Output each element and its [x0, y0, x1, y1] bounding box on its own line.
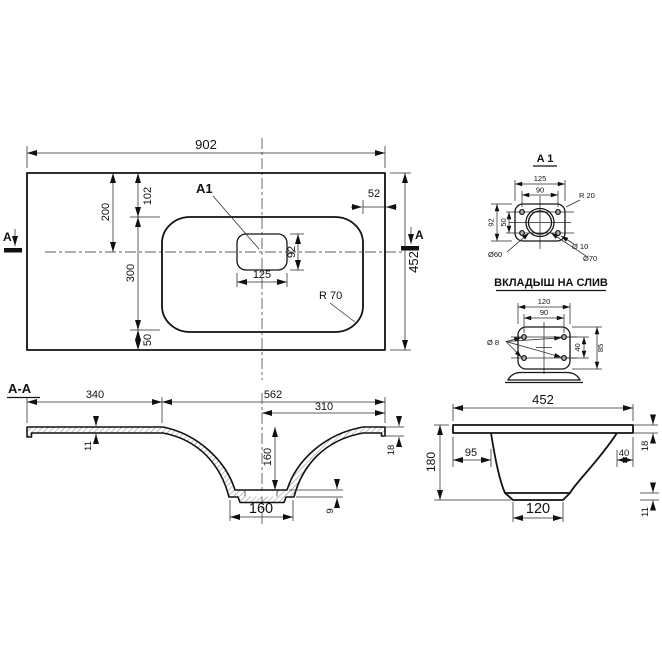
aa-dim-bottom-thickness: 9: [325, 508, 336, 513]
section-aa-title: A-A: [8, 381, 32, 396]
a1-dim-50: 50: [499, 218, 508, 226]
dim-total-width: 902: [195, 137, 217, 152]
drawing-sheet: 902 452 200 102 300 50 52 125: [0, 0, 662, 662]
section-letter-left: A: [3, 230, 12, 244]
section-aa: A-A 340 562 310 160 160 11: [7, 381, 404, 524]
aa-dim-edge-thickness: 18: [386, 445, 397, 456]
section-letter-right: A: [415, 228, 424, 242]
side-bowl-plinth: [505, 493, 570, 500]
dim-50: 50: [142, 334, 154, 346]
side-dim-120: 120: [526, 501, 550, 517]
side-bowl-outline: [491, 433, 617, 493]
a1-radius-label: R 20: [579, 191, 595, 200]
dim-102: 102: [142, 187, 154, 205]
aa-dim-562: 562: [264, 389, 282, 401]
aa-dim-bottom-width: 160: [249, 501, 273, 517]
insert-dim-85: 85: [596, 344, 605, 352]
dim-52: 52: [368, 188, 380, 200]
detail-a1: A 1 125 90 92 50 R 20 Ø60: [487, 153, 598, 263]
detail-a1-title: A 1: [537, 153, 554, 165]
section-cut-bar: [401, 246, 419, 251]
dim-total-depth: 452: [406, 251, 421, 273]
drain-insert-detail: ВКЛАДЫШ НА СЛИВ 120 90 40 85 Ø 8: [487, 277, 608, 383]
side-section-view: 452 180 95 40 18 120 11: [424, 392, 659, 522]
aa-dim-340: 340: [86, 389, 104, 401]
dim-300: 300: [125, 264, 137, 282]
a1-dim-90: 90: [536, 186, 544, 195]
side-dim-95: 95: [465, 447, 477, 459]
side-dim-452: 452: [532, 392, 554, 407]
insert-dim-120: 120: [538, 297, 551, 306]
section-marker-right: A: [401, 227, 424, 251]
side-dim-180: 180: [424, 452, 438, 472]
aa-dim-310: 310: [315, 401, 333, 413]
radius-label: R 70: [319, 290, 342, 302]
section-marker-left: A: [3, 229, 22, 253]
dim-200: 200: [100, 203, 112, 221]
dim-hole-width: 125: [253, 269, 271, 281]
dim-hole-height: 92: [286, 246, 298, 258]
a1-dim-125: 125: [534, 174, 547, 183]
countertop-outline: [27, 173, 385, 350]
section-cut-bar: [4, 248, 22, 253]
side-dim-18: 18: [640, 441, 651, 452]
drain-opening: [245, 491, 277, 497]
drain-insert-title: ВКЛАДЫШ НА СЛИВ: [494, 277, 608, 289]
technical-drawing: 902 452 200 102 300 50 52 125: [0, 0, 662, 662]
insert-dia-holes-label: Ø 8: [487, 338, 499, 347]
side-slab: [453, 425, 633, 433]
insert-dim-40: 40: [573, 343, 582, 351]
side-dim-11: 11: [640, 507, 651, 517]
detail-leader-line: [213, 196, 259, 249]
a1-dim-92: 92: [487, 218, 496, 226]
detail-ref-label: A1: [196, 181, 213, 196]
aa-dim-thickness: 11: [83, 441, 94, 451]
a1-dia-holes-label: Ø 10: [572, 242, 588, 251]
top-view: 902 452 200 102 300 50 52 125: [3, 137, 424, 380]
section-profile: [27, 427, 385, 503]
insert-dim-90: 90: [540, 308, 548, 317]
side-dim-40: 40: [619, 448, 630, 459]
a1-dia-center-label: Ø60: [488, 250, 502, 259]
aa-dim-depth: 160: [262, 448, 274, 466]
